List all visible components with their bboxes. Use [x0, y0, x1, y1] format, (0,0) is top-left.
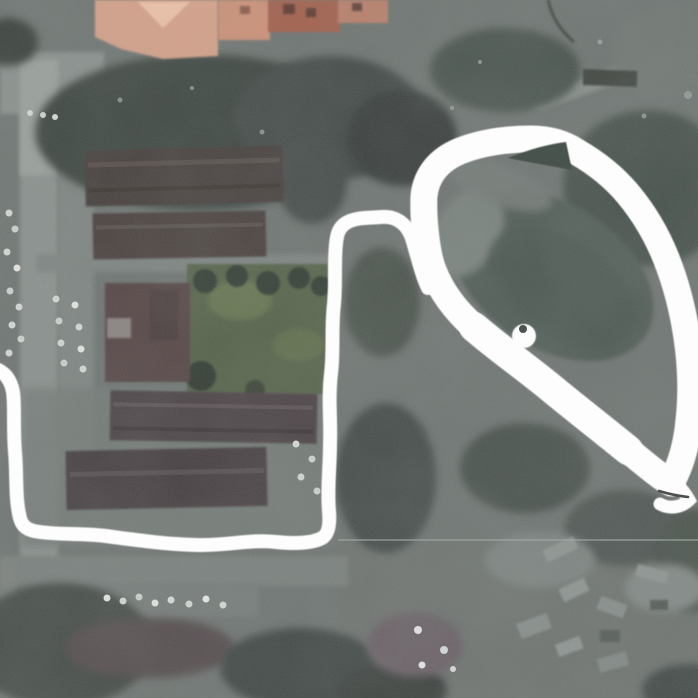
- annotated-satellite-image: [0, 0, 698, 698]
- pond-loop-knob-hole: [519, 325, 527, 333]
- satellite-map-canvas: [0, 0, 698, 698]
- photo-grain-overlay: [0, 0, 698, 698]
